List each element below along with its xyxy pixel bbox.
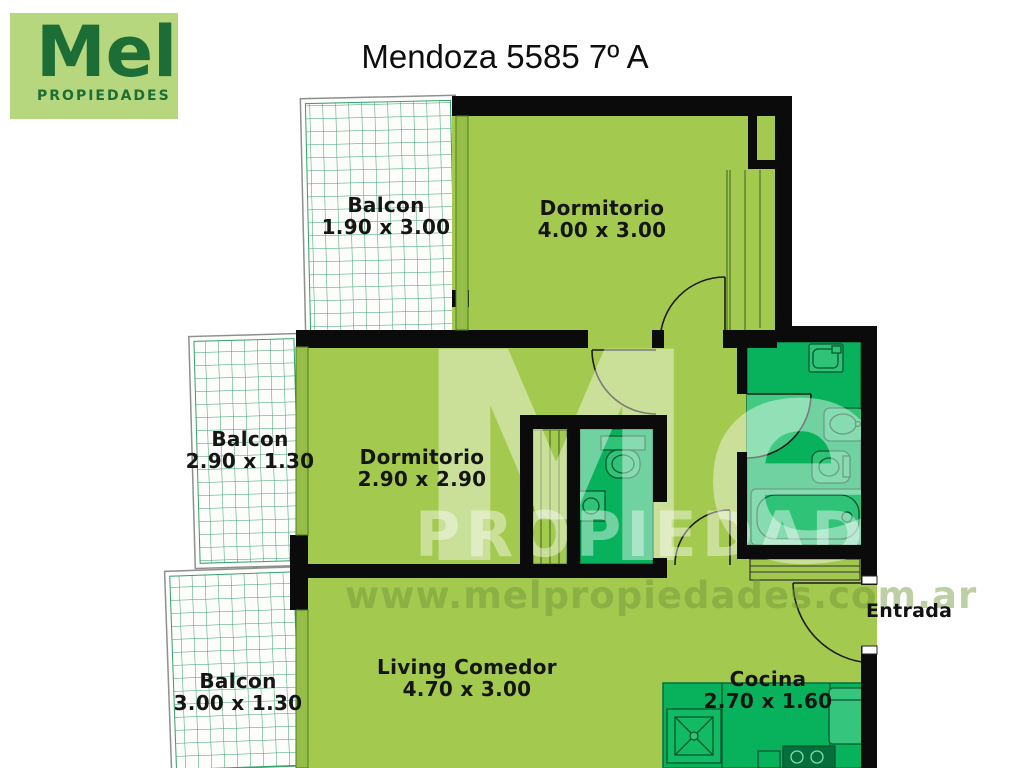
kitchen-sink-icon (667, 709, 721, 763)
room-name: Balcon (322, 194, 451, 216)
room-label-cocina: Cocina 2.70 x 1.60 (704, 668, 833, 712)
room-label-dormitorio-1: Dormitorio 4.00 x 3.00 (538, 197, 667, 241)
window-dorm1 (456, 116, 468, 330)
room-name: Dormitorio (538, 197, 667, 219)
room-dims: 2.90 x 1.30 (186, 450, 315, 472)
room-label-dormitorio-2: Dormitorio 2.90 x 2.90 (358, 446, 487, 490)
floor-plan-page: Mel PROPIEDADES www.melpropiedades.com.a… (0, 0, 1024, 768)
room-label-living: Living Comedor 4.70 x 3.00 (377, 656, 557, 700)
room-dims: 4.00 x 3.00 (538, 219, 667, 241)
room-label-balcony-3: Balcon 3.00 x 1.30 (174, 670, 303, 714)
room-name: Cocina (704, 668, 833, 690)
room-dims: 3.00 x 1.30 (174, 692, 303, 714)
room-dims: 4.70 x 3.00 (377, 678, 557, 700)
room-name: Dormitorio (358, 446, 487, 468)
room-dims: 2.90 x 2.90 (358, 468, 487, 490)
room-name: Living Comedor (377, 656, 557, 678)
room-label-balcony-2: Balcon 2.90 x 1.30 (186, 428, 315, 472)
room-label-balcony-1: Balcon 1.90 x 3.00 (322, 194, 451, 238)
entrance-label: Entrada (866, 600, 952, 622)
room-name: Balcon (186, 428, 315, 450)
balcony-3-floor (165, 567, 306, 768)
room-dims: 2.70 x 1.60 (704, 690, 833, 712)
logo-subtitle: PROPIEDADES (37, 88, 178, 104)
page-title: Mendoza 5585 7º A (0, 38, 1010, 76)
room-name: Balcon (174, 670, 303, 692)
watermark-brand-sub: PROPIEDADES (415, 498, 965, 571)
room-dims: 1.90 x 3.00 (322, 216, 451, 238)
